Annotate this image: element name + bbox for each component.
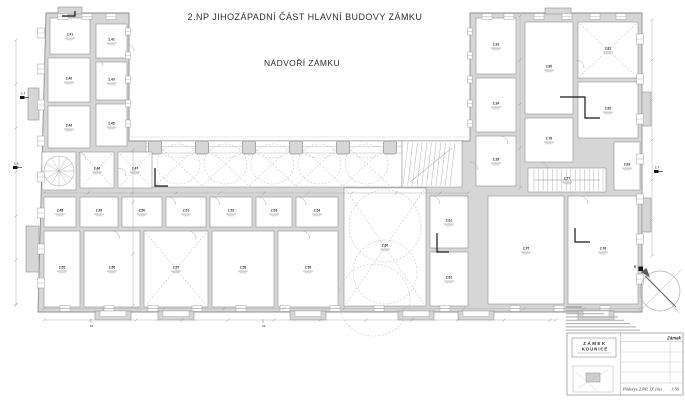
room-label: 2.80 [546, 65, 553, 69]
room-area-text [226, 214, 236, 215]
room-area-text [181, 214, 191, 215]
plan-generated-layer: 2.412.422.402.432.442.452.462.472.482.49… [13, 7, 682, 378]
room-area-text [107, 271, 117, 272]
room-area-text [622, 168, 632, 169]
room-area-text [66, 83, 73, 84]
north-marker-dot [639, 267, 644, 272]
room-area-text [67, 39, 74, 40]
room-area-text [183, 215, 190, 216]
room-area-text [64, 82, 74, 83]
room-area-text [605, 113, 612, 114]
section-marker-label: 1.7 [655, 166, 660, 170]
room-label: 2.46 [94, 167, 101, 171]
room-area-text [380, 249, 390, 250]
drawing-sheet: 2.412.422.402.432.442.452.462.472.482.49… [0, 0, 685, 400]
room-area-text [271, 215, 278, 216]
room-label: 2.35 [493, 158, 500, 162]
notes-text-line [566, 326, 636, 327]
room-area-text [57, 215, 64, 216]
facade-projection [58, 7, 82, 14]
room-label: 2.60 [382, 244, 389, 248]
room-label: 2.49 [96, 209, 103, 213]
room-area-text [55, 214, 65, 215]
room-label: 2.44 [66, 124, 73, 128]
drawing-scale: 1:50 [671, 387, 680, 392]
notes-text-line [566, 320, 624, 321]
notes-text-line [566, 316, 618, 317]
logo-text-line2: KOUNICE [582, 347, 609, 352]
room-label: 2.76 [600, 247, 607, 251]
north-arrow-shaft [645, 276, 676, 307]
room-area-text [108, 128, 115, 129]
notes-text-line [566, 323, 630, 324]
room-label: 2.42 [108, 38, 115, 42]
room-label: 2.54 [314, 209, 321, 213]
room-area-text [605, 53, 612, 54]
room-area-text [491, 107, 501, 108]
sheet-title: 2.NP JIHOZÁPADNÍ ČÁST HLAVNÍ BUDOVY ZÁMK… [188, 12, 423, 22]
room-label: 2.43 [108, 78, 115, 82]
project-name: Zámek [666, 336, 681, 341]
room-area-text [59, 272, 66, 273]
section-marker-label: 1.A [14, 162, 20, 166]
room-label: 2.75 [523, 247, 530, 251]
room-area-text [94, 173, 101, 174]
notes-text-line [566, 330, 640, 331]
room-area-text [544, 142, 554, 143]
room-area-text [92, 172, 102, 173]
room-area-text [64, 129, 74, 130]
room-area-text [312, 214, 322, 215]
room-label: 2.34 [493, 102, 500, 106]
room-label: 2.61 [446, 219, 453, 223]
arcade-corridor [146, 141, 402, 187]
room-area-text [493, 108, 500, 109]
room-label: 2.57 [173, 266, 180, 270]
room-label: 2.40 [66, 77, 73, 81]
room-area-text [109, 272, 116, 273]
room-area-text [139, 215, 146, 216]
room-area-text [269, 214, 279, 215]
room-area-text [108, 84, 115, 85]
room-label: 2.33 [493, 43, 500, 47]
room-label: 2.59 [305, 266, 312, 270]
arcade-pillar [196, 141, 209, 154]
room-area-text [603, 52, 613, 53]
room-label: 2.53 [271, 209, 278, 213]
arcade-pillar [337, 141, 350, 154]
section-marker-icon [20, 96, 25, 99]
room-area-text [446, 225, 453, 226]
room-area-text [137, 214, 147, 215]
room-label: 2.62 [446, 276, 453, 280]
title-block: ZÁMEK KOUNICE Zámek Půdorys 2.NP, JZ čás… [567, 333, 683, 395]
room-area-text [107, 83, 117, 84]
room-area-text [491, 163, 501, 164]
room-area-text [523, 253, 530, 254]
notes-text-line [566, 307, 582, 308]
room-area-text [107, 43, 117, 44]
room-area-text [521, 252, 531, 253]
room-area-text [603, 112, 613, 113]
room-area-text [446, 282, 453, 283]
room-label: 2.56 [109, 266, 116, 270]
bay-window-glass [403, 311, 429, 317]
room-label: 2.48 [57, 209, 64, 213]
bay-window-glass [100, 311, 126, 317]
room-label: 2.41 [67, 33, 74, 37]
room-area-text [314, 215, 321, 216]
room-label: 2.50 [139, 209, 146, 213]
logo-text-line1: ZÁMEK [583, 341, 607, 346]
room-area-text [173, 272, 180, 273]
room-area-text [493, 164, 500, 165]
room-label: 2.81 [605, 47, 612, 51]
room-area-text [491, 48, 501, 49]
room-area-text [493, 49, 500, 50]
section-marker-icon [654, 170, 659, 173]
room-area-text [562, 182, 572, 183]
room-area-text [171, 271, 181, 272]
room-area-text [564, 183, 571, 184]
notes-text-line [566, 310, 612, 311]
room-label: 2.82 [605, 107, 612, 111]
bay-window-glass [463, 311, 489, 317]
room-area-text [132, 173, 139, 174]
room-area-text [598, 252, 608, 253]
room-area-text [228, 215, 235, 216]
arcade-pillar [290, 141, 303, 154]
room-label: 2.77 [564, 177, 571, 181]
room-area-text [544, 70, 554, 71]
facade-projection [545, 8, 571, 14]
room-label: 2.58 [240, 266, 247, 270]
room-area-text [624, 169, 631, 170]
room-area-text [546, 143, 553, 144]
room-area-text [57, 271, 67, 272]
room-label: 2.45 [108, 122, 115, 126]
room-area-text [444, 224, 454, 225]
courtyard-label: NÁDVOŘÍ ZÁMKU [264, 58, 340, 68]
room-area-text [65, 38, 75, 39]
bay-window-glass [163, 311, 189, 317]
room-label: 2.78 [546, 137, 553, 141]
room-label: 2.52 [228, 209, 235, 213]
bay-window-glass [295, 311, 321, 317]
section-marker-icon [13, 166, 18, 169]
room-label: 2.55 [59, 266, 66, 270]
room-label: 2.83 [624, 163, 631, 167]
room-area-text [600, 253, 607, 254]
room-area-text [240, 272, 247, 273]
room-area-text [96, 215, 103, 216]
arcade-pillar [243, 141, 256, 154]
room-area-text [107, 127, 117, 128]
notes-text-line [566, 313, 604, 314]
floor-plan: 2.412.422.402.432.442.452.462.472.482.49… [0, 0, 685, 400]
chain-tick-label: b2 [90, 324, 94, 328]
room-label: 2.51 [183, 209, 190, 213]
room-area-text [94, 214, 104, 215]
room-area-text [238, 271, 248, 272]
room-area-text [108, 44, 115, 45]
chain-tick-label: b2 [262, 324, 266, 328]
site-plan-building [586, 373, 600, 382]
room-area-text [130, 172, 140, 173]
facade-projection [26, 226, 39, 272]
room-area-text [546, 71, 553, 72]
room-area-text [303, 271, 313, 272]
room-area-text [444, 281, 454, 282]
arcade-pillar [384, 141, 397, 154]
section-marker-label: 1.7 [21, 92, 26, 96]
room-area-text [66, 130, 73, 131]
room-area-text [305, 272, 312, 273]
room-area-text [382, 250, 389, 251]
